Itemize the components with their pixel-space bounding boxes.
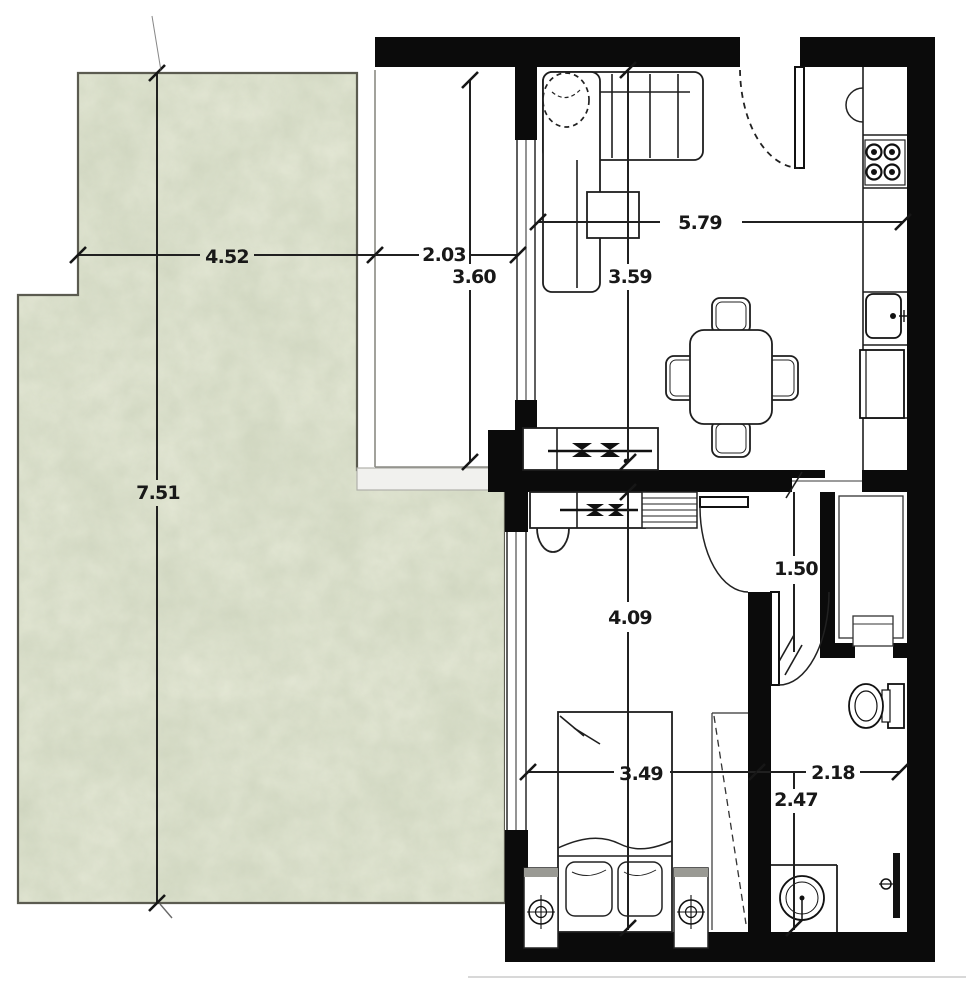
- dim-label-bedroom-depth: 4.09: [608, 607, 652, 629]
- wall-bottom: [505, 932, 935, 962]
- floor-plan-canvas: 4.52 2.03 3.60 7.51: [0, 0, 968, 998]
- wall-mid-right: [862, 470, 907, 492]
- corner-sofa: [543, 72, 703, 292]
- nightstand-left: [524, 868, 558, 948]
- shower-door: [879, 853, 900, 918]
- bedroom-door-leaf: [700, 497, 748, 507]
- dim-balcony-width: 2.03: [375, 244, 526, 266]
- wall-lintel-stub: [792, 470, 825, 478]
- bathroom-door-leaf: [771, 592, 779, 685]
- desk-chair: [537, 528, 569, 552]
- extension-scratch: [152, 16, 161, 71]
- bed: [558, 712, 672, 932]
- dim-label-hallway-depth: 1.50: [774, 558, 818, 580]
- dining-set: [666, 298, 798, 457]
- toilet: [849, 684, 904, 728]
- dining-table: [690, 330, 772, 424]
- closet: [835, 492, 907, 646]
- dim-label-living-depth: 3.59: [608, 266, 652, 288]
- wall-closet-west: [820, 492, 835, 658]
- wall-bedroom-west-top: [505, 492, 528, 532]
- dim-label-terrace-depth: 7.51: [136, 482, 180, 504]
- dim-label-living-width: 5.79: [678, 212, 722, 234]
- dim-label-balcony-depth: 3.60: [452, 266, 496, 288]
- entrance-door: [740, 67, 804, 168]
- wardrobe-mirror: [712, 713, 748, 930]
- wall-right: [907, 37, 935, 962]
- bedroom-door: [700, 497, 748, 592]
- kitchen-counter-curve: [846, 88, 863, 122]
- wall-top-left: [375, 37, 740, 67]
- dim-bathroom-width: 2.18: [757, 762, 908, 784]
- dim-hallway-depth: 1.50: [774, 492, 818, 652]
- floor-plan-page: 4.52 2.03 3.60 7.51: [0, 0, 968, 998]
- closet-appliance: [853, 616, 893, 646]
- refrigerator: [860, 350, 904, 418]
- entrance-door-arc: [740, 70, 799, 168]
- dim-label-bedroom-width: 3.49: [619, 763, 663, 785]
- bedroom: [524, 492, 748, 948]
- stove-burners: [865, 140, 905, 185]
- kitchen-sink: [866, 294, 909, 338]
- shelf-unit: [642, 492, 697, 528]
- kitchen: [846, 67, 909, 470]
- coffee-table: [587, 192, 639, 238]
- dim-label-bathroom-width: 2.18: [811, 762, 855, 784]
- entrance-door-leaf: [795, 67, 804, 168]
- dim-label-balcony-width: 2.03: [422, 244, 466, 266]
- wall-living-west-stub: [515, 67, 537, 140]
- balcony-parapet: [357, 468, 505, 490]
- dim-bedroom-width: 3.49: [520, 763, 765, 785]
- wall-closet-south-right: [893, 643, 907, 658]
- living-balcony-window: [515, 140, 537, 400]
- dining-chair-top: [712, 298, 750, 334]
- tv-console: [523, 428, 658, 470]
- bedroom-window: [505, 532, 528, 830]
- nightstand-right: [674, 868, 708, 948]
- bedroom-door-arc: [700, 507, 748, 592]
- dim-balcony-depth: 3.60: [452, 72, 496, 470]
- wall-bedroom-east: [748, 592, 771, 932]
- wall-mid-horizontal: [505, 470, 792, 492]
- wall-closet-south-left: [820, 643, 855, 658]
- dim-label-terrace-width: 4.52: [205, 246, 249, 268]
- washbasin: [780, 876, 824, 921]
- dining-chair-bottom: [712, 420, 750, 457]
- dim-label-bathroom-depth: 2.47: [774, 789, 818, 811]
